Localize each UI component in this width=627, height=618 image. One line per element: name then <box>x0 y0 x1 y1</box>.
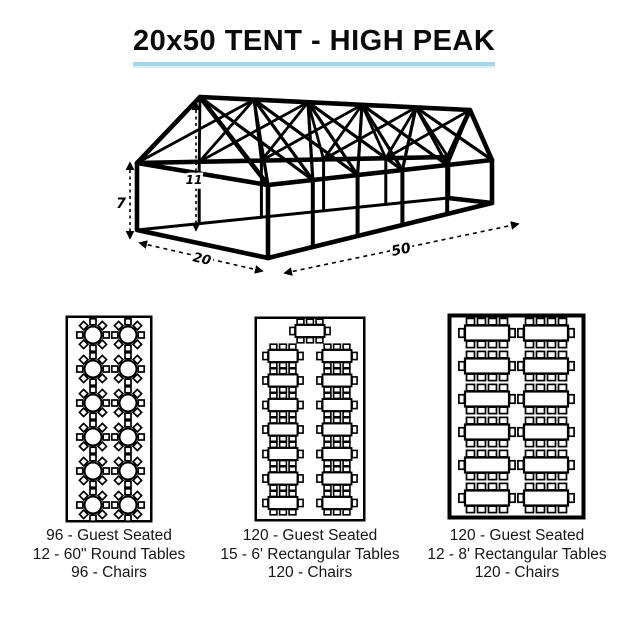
chair <box>317 377 322 384</box>
chair <box>270 485 277 490</box>
rect-table-with-chairs <box>263 369 303 393</box>
chair <box>103 400 109 406</box>
chair <box>90 455 96 461</box>
chair <box>526 374 534 381</box>
chair <box>280 418 287 423</box>
chair <box>559 506 567 512</box>
chair <box>559 417 567 424</box>
dimension-length: 50 <box>285 224 518 273</box>
chair <box>317 352 322 359</box>
rect-table <box>465 491 509 506</box>
chair <box>478 384 486 391</box>
round-table-with-chairs <box>112 421 144 453</box>
rect-table <box>269 350 298 362</box>
chair <box>280 369 287 374</box>
chair <box>489 440 497 447</box>
width-label: 20 <box>191 250 212 269</box>
round-table-with-chairs <box>77 387 109 419</box>
chair <box>317 450 322 457</box>
rect-table-with-chairs <box>518 318 574 347</box>
chair <box>518 395 524 404</box>
chair <box>510 494 515 503</box>
chair <box>317 499 322 506</box>
chair <box>289 418 296 423</box>
chair <box>77 434 83 440</box>
chair <box>478 341 486 348</box>
rect-table <box>269 473 298 485</box>
rect-table-with-chairs <box>459 450 515 479</box>
peak-height-label: 11 <box>186 173 203 187</box>
chair <box>459 329 465 338</box>
caption-6ft-tables: 120 - Guest Seated 15 - 6' Rectangular T… <box>210 527 410 583</box>
chair <box>559 374 567 381</box>
chair <box>125 481 131 487</box>
chair <box>459 428 465 437</box>
chair <box>467 341 475 348</box>
chair <box>459 494 465 503</box>
chair <box>526 384 534 391</box>
chair <box>500 473 508 480</box>
chair <box>263 499 268 506</box>
round-table <box>85 463 102 480</box>
chair <box>537 450 545 457</box>
chair <box>343 436 350 441</box>
caption-line-guests: 96 - Guest Seated <box>9 527 209 546</box>
chair <box>270 363 277 368</box>
round-table <box>120 361 137 378</box>
chair <box>352 352 357 359</box>
chair <box>317 401 322 408</box>
chair <box>289 387 296 392</box>
rect-table-with-chairs <box>459 417 515 446</box>
rect-table-with-chairs <box>263 344 303 368</box>
rect-table <box>524 458 568 473</box>
chair <box>467 440 475 447</box>
chair <box>324 412 331 417</box>
caption-line-tables: 12 - 60" Round Tables <box>9 546 209 565</box>
chair <box>138 400 144 406</box>
chair <box>478 506 486 512</box>
chair <box>343 442 350 447</box>
rect-table <box>524 392 568 407</box>
rect-table <box>524 491 568 506</box>
tent-wireframe-diagram: 7 11 20 50 <box>105 80 535 295</box>
chair <box>467 506 475 512</box>
chair <box>467 374 475 381</box>
chair <box>526 506 534 512</box>
chair <box>138 468 144 474</box>
chair <box>500 384 508 391</box>
round-table <box>120 395 137 412</box>
chair <box>298 377 303 384</box>
chair <box>334 418 341 423</box>
chair <box>334 442 341 447</box>
chair <box>537 473 545 480</box>
chair <box>297 338 304 343</box>
chair <box>352 499 357 506</box>
chair <box>125 455 131 461</box>
rect-table-with-chairs <box>459 384 515 413</box>
chair <box>324 436 331 441</box>
chair <box>548 341 556 348</box>
chair <box>467 483 475 490</box>
caption-line-tables: 12 - 8' Rectangular Tables <box>417 546 617 565</box>
chair <box>77 468 83 474</box>
chair <box>537 506 545 512</box>
chair <box>280 363 287 368</box>
rect-table-with-chairs <box>317 393 357 417</box>
chair <box>125 387 131 393</box>
chair <box>343 485 350 490</box>
round-table-with-chairs <box>112 489 144 521</box>
chair <box>559 407 567 414</box>
rect-table <box>269 399 298 411</box>
rect-table-with-chairs <box>263 393 303 417</box>
chair <box>90 489 96 495</box>
chair <box>500 318 508 325</box>
chair <box>90 353 96 359</box>
chair <box>500 407 508 414</box>
rect-table-with-chairs <box>317 491 357 515</box>
chair <box>270 442 277 447</box>
rect-table-with-chairs <box>290 319 330 343</box>
rect-table <box>269 497 298 509</box>
chair <box>489 473 497 480</box>
chair <box>90 421 96 427</box>
chair <box>478 417 486 424</box>
chair <box>548 351 556 358</box>
chair <box>489 374 497 381</box>
chair <box>125 515 131 521</box>
chair <box>548 318 556 325</box>
chair <box>298 450 303 457</box>
caption-8ft-tables: 120 - Guest Seated 12 - 8' Rectangular T… <box>417 527 617 583</box>
chair <box>343 344 350 349</box>
chair <box>90 379 96 385</box>
page-title-block: 20x50 TENT - HIGH PEAK <box>133 24 495 68</box>
chair <box>289 467 296 472</box>
chair <box>270 418 277 423</box>
round-table <box>85 395 102 412</box>
chair <box>478 351 486 358</box>
chair <box>489 407 497 414</box>
rect-table <box>465 359 509 374</box>
chair <box>270 393 277 398</box>
chair <box>334 369 341 374</box>
chair <box>352 475 357 482</box>
chair <box>270 387 277 392</box>
chair <box>334 412 341 417</box>
chair <box>324 461 331 466</box>
rect-table <box>269 375 298 387</box>
chair <box>526 417 534 424</box>
chair <box>125 345 131 351</box>
chair <box>559 450 567 457</box>
chair <box>559 351 567 358</box>
round-table <box>85 327 102 344</box>
chair <box>324 393 331 398</box>
chair <box>125 319 131 325</box>
rect-table <box>269 448 298 460</box>
chair <box>548 417 556 424</box>
chair <box>316 338 323 343</box>
chair <box>478 483 486 490</box>
chair <box>548 407 556 414</box>
layout-8ft-rect-tables-diagram <box>447 313 586 520</box>
caption-line-chairs: 120 - Chairs <box>417 564 617 583</box>
chair <box>289 344 296 349</box>
chair <box>548 483 556 490</box>
chair <box>289 436 296 441</box>
chair <box>298 352 303 359</box>
dimension-width: 20 <box>140 243 262 271</box>
chair <box>298 475 303 482</box>
chair <box>280 485 287 490</box>
chair <box>343 387 350 392</box>
chair <box>289 369 296 374</box>
chair <box>270 344 277 349</box>
chair <box>289 491 296 496</box>
chair <box>352 377 357 384</box>
chair <box>548 374 556 381</box>
chair <box>526 473 534 480</box>
rect-table <box>323 375 352 387</box>
rect-table <box>323 497 352 509</box>
chair <box>467 318 475 325</box>
page-title: 20x50 TENT - HIGH PEAK <box>133 24 495 58</box>
chair <box>324 467 331 472</box>
round-table-with-chairs <box>77 421 109 453</box>
chair <box>489 483 497 490</box>
chair <box>518 461 524 470</box>
chair <box>559 473 567 480</box>
chair <box>500 506 508 512</box>
chair <box>569 395 575 404</box>
chair <box>343 412 350 417</box>
chair <box>297 319 304 324</box>
chair <box>343 418 350 423</box>
chair <box>334 344 341 349</box>
chair <box>334 436 341 441</box>
chair <box>510 428 515 437</box>
caption-line-guests: 120 - Guest Seated <box>417 527 617 546</box>
round-table <box>85 361 102 378</box>
chair <box>138 434 144 440</box>
round-table-with-chairs <box>77 353 109 385</box>
rect-table <box>465 326 509 341</box>
chair <box>343 393 350 398</box>
round-table-with-chairs <box>112 455 144 487</box>
chair <box>324 418 331 423</box>
chair <box>112 468 118 474</box>
chair <box>90 345 96 351</box>
chair <box>263 475 268 482</box>
chair <box>489 341 497 348</box>
chair <box>103 468 109 474</box>
chair <box>325 327 330 334</box>
chair <box>343 369 350 374</box>
chair <box>90 413 96 419</box>
round-table <box>85 429 102 446</box>
chair <box>526 318 534 325</box>
chair <box>317 426 322 433</box>
chair <box>467 417 475 424</box>
chair <box>77 366 83 372</box>
chair <box>112 332 118 338</box>
chair <box>559 440 567 447</box>
chair <box>467 473 475 480</box>
chair <box>270 369 277 374</box>
chair <box>569 329 575 338</box>
chair <box>526 341 534 348</box>
chair <box>324 510 331 515</box>
rect-table <box>524 359 568 374</box>
rect-table <box>323 399 352 411</box>
chair <box>489 450 497 457</box>
chair <box>77 332 83 338</box>
chair <box>112 434 118 440</box>
chair <box>289 442 296 447</box>
chair <box>289 485 296 490</box>
chair <box>324 387 331 392</box>
round-table-with-chairs <box>112 387 144 419</box>
chair <box>334 510 341 515</box>
rect-table-with-chairs <box>317 344 357 368</box>
chair <box>280 344 287 349</box>
chair <box>489 318 497 325</box>
chair <box>548 440 556 447</box>
chair <box>307 338 314 343</box>
chair <box>537 374 545 381</box>
chair <box>526 351 534 358</box>
chair <box>537 351 545 358</box>
chair <box>138 366 144 372</box>
chair <box>270 461 277 466</box>
chair <box>352 426 357 433</box>
chair <box>289 412 296 417</box>
round-table-with-chairs <box>77 489 109 521</box>
title-underline <box>133 62 495 68</box>
chair <box>125 379 131 385</box>
chair <box>548 384 556 391</box>
tent-spec-sheet: 20x50 TENT - HIGH PEAK <box>0 0 627 618</box>
chair <box>77 400 83 406</box>
chair <box>548 506 556 512</box>
chair <box>103 434 109 440</box>
chair <box>467 450 475 457</box>
chair <box>125 447 131 453</box>
chair <box>298 401 303 408</box>
chair <box>138 502 144 508</box>
chair <box>298 426 303 433</box>
rect-table <box>465 425 509 440</box>
rect-table <box>465 392 509 407</box>
chair <box>500 374 508 381</box>
chair <box>559 341 567 348</box>
chair <box>569 494 575 503</box>
caption-line-chairs: 120 - Chairs <box>210 564 410 583</box>
chair <box>307 319 314 324</box>
chair <box>112 400 118 406</box>
chair <box>263 377 268 384</box>
chair <box>518 494 524 503</box>
chair <box>478 407 486 414</box>
caption-line-chairs: 96 - Chairs <box>9 564 209 583</box>
chair <box>290 327 295 334</box>
chair <box>500 483 508 490</box>
chair <box>112 366 118 372</box>
chair <box>352 450 357 457</box>
chair <box>334 467 341 472</box>
rect-table-with-chairs <box>518 417 574 446</box>
chair <box>537 407 545 414</box>
chair <box>510 461 515 470</box>
chair <box>478 440 486 447</box>
rect-table-with-chairs <box>459 351 515 380</box>
chair <box>112 502 118 508</box>
chair <box>270 436 277 441</box>
chair <box>103 502 109 508</box>
chair <box>569 461 575 470</box>
round-table-with-chairs <box>77 319 109 351</box>
chair <box>138 332 144 338</box>
chair <box>90 515 96 521</box>
rect-table-with-chairs <box>459 483 515 512</box>
rect-table-with-chairs <box>518 384 574 413</box>
rect-table-with-chairs <box>518 483 574 512</box>
chair <box>537 384 545 391</box>
rect-table <box>323 473 352 485</box>
chair <box>559 384 567 391</box>
chair <box>500 351 508 358</box>
rect-table-with-chairs <box>263 418 303 442</box>
chair <box>280 442 287 447</box>
chair <box>489 417 497 424</box>
chair <box>280 393 287 398</box>
chair <box>289 461 296 466</box>
chair <box>324 363 331 368</box>
chair <box>324 344 331 349</box>
chair <box>343 510 350 515</box>
chair <box>270 491 277 496</box>
rect-table <box>524 425 568 440</box>
layout-6ft-rect-tables-diagram <box>254 316 366 522</box>
chair <box>537 318 545 325</box>
round-table <box>120 497 137 514</box>
chair <box>518 362 524 371</box>
rect-table-with-chairs <box>263 467 303 491</box>
caption-line-guests: 120 - Guest Seated <box>210 527 410 546</box>
rect-table-with-chairs <box>459 318 515 347</box>
chair <box>270 510 277 515</box>
chair <box>526 440 534 447</box>
chair <box>537 341 545 348</box>
chair <box>548 450 556 457</box>
chair <box>500 450 508 457</box>
chair <box>316 319 323 324</box>
chair <box>459 362 465 371</box>
chair <box>343 461 350 466</box>
caption-line-tables: 15 - 6' Rectangular Tables <box>210 546 410 565</box>
rect-table-with-chairs <box>317 369 357 393</box>
chair <box>459 395 465 404</box>
chair <box>526 407 534 414</box>
chair <box>324 369 331 374</box>
chair <box>263 352 268 359</box>
chair <box>280 436 287 441</box>
chair <box>334 485 341 490</box>
chair <box>352 401 357 408</box>
